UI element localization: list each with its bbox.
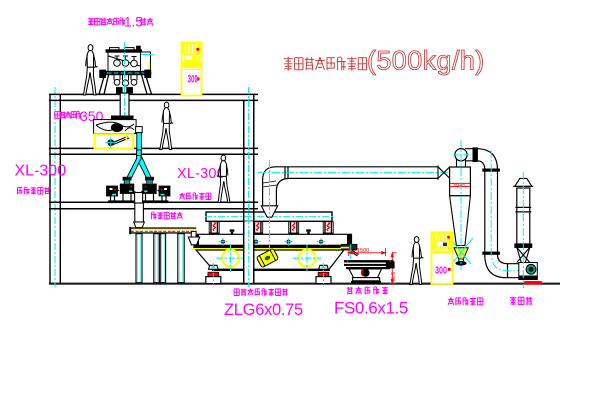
svg-text:1500: 1500 [357, 248, 369, 254]
svg-text:XL-300: XL-300 [177, 166, 225, 182]
svg-text:XL-300: XL-300 [15, 163, 67, 180]
svg-text:540: 540 [389, 272, 395, 281]
svg-text:P400: P400 [454, 183, 465, 188]
svg-text:ZLG6x0.75: ZLG6x0.75 [224, 301, 303, 319]
svg-text:300: 300 [435, 265, 447, 277]
svg-text:FS0.6x1.5: FS0.6x1.5 [334, 299, 408, 318]
svg-text:1.5: 1.5 [124, 15, 143, 30]
svg-text:(500kg/h): (500kg/h) [367, 46, 485, 76]
svg-text:300: 300 [188, 74, 199, 86]
